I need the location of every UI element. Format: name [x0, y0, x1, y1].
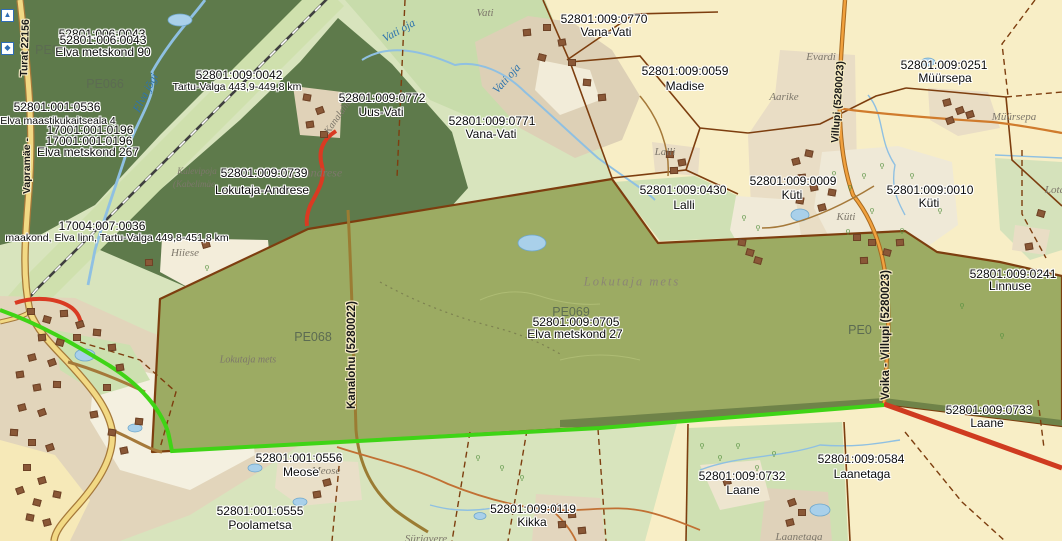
map-canvas[interactable]: 52801:006:0043 17001:001:0196 PE069 Loku…	[0, 0, 1062, 541]
poi-icon: ◆	[1, 42, 14, 55]
poi-icon: ▲	[1, 9, 14, 22]
map-base-layers	[0, 0, 1062, 541]
